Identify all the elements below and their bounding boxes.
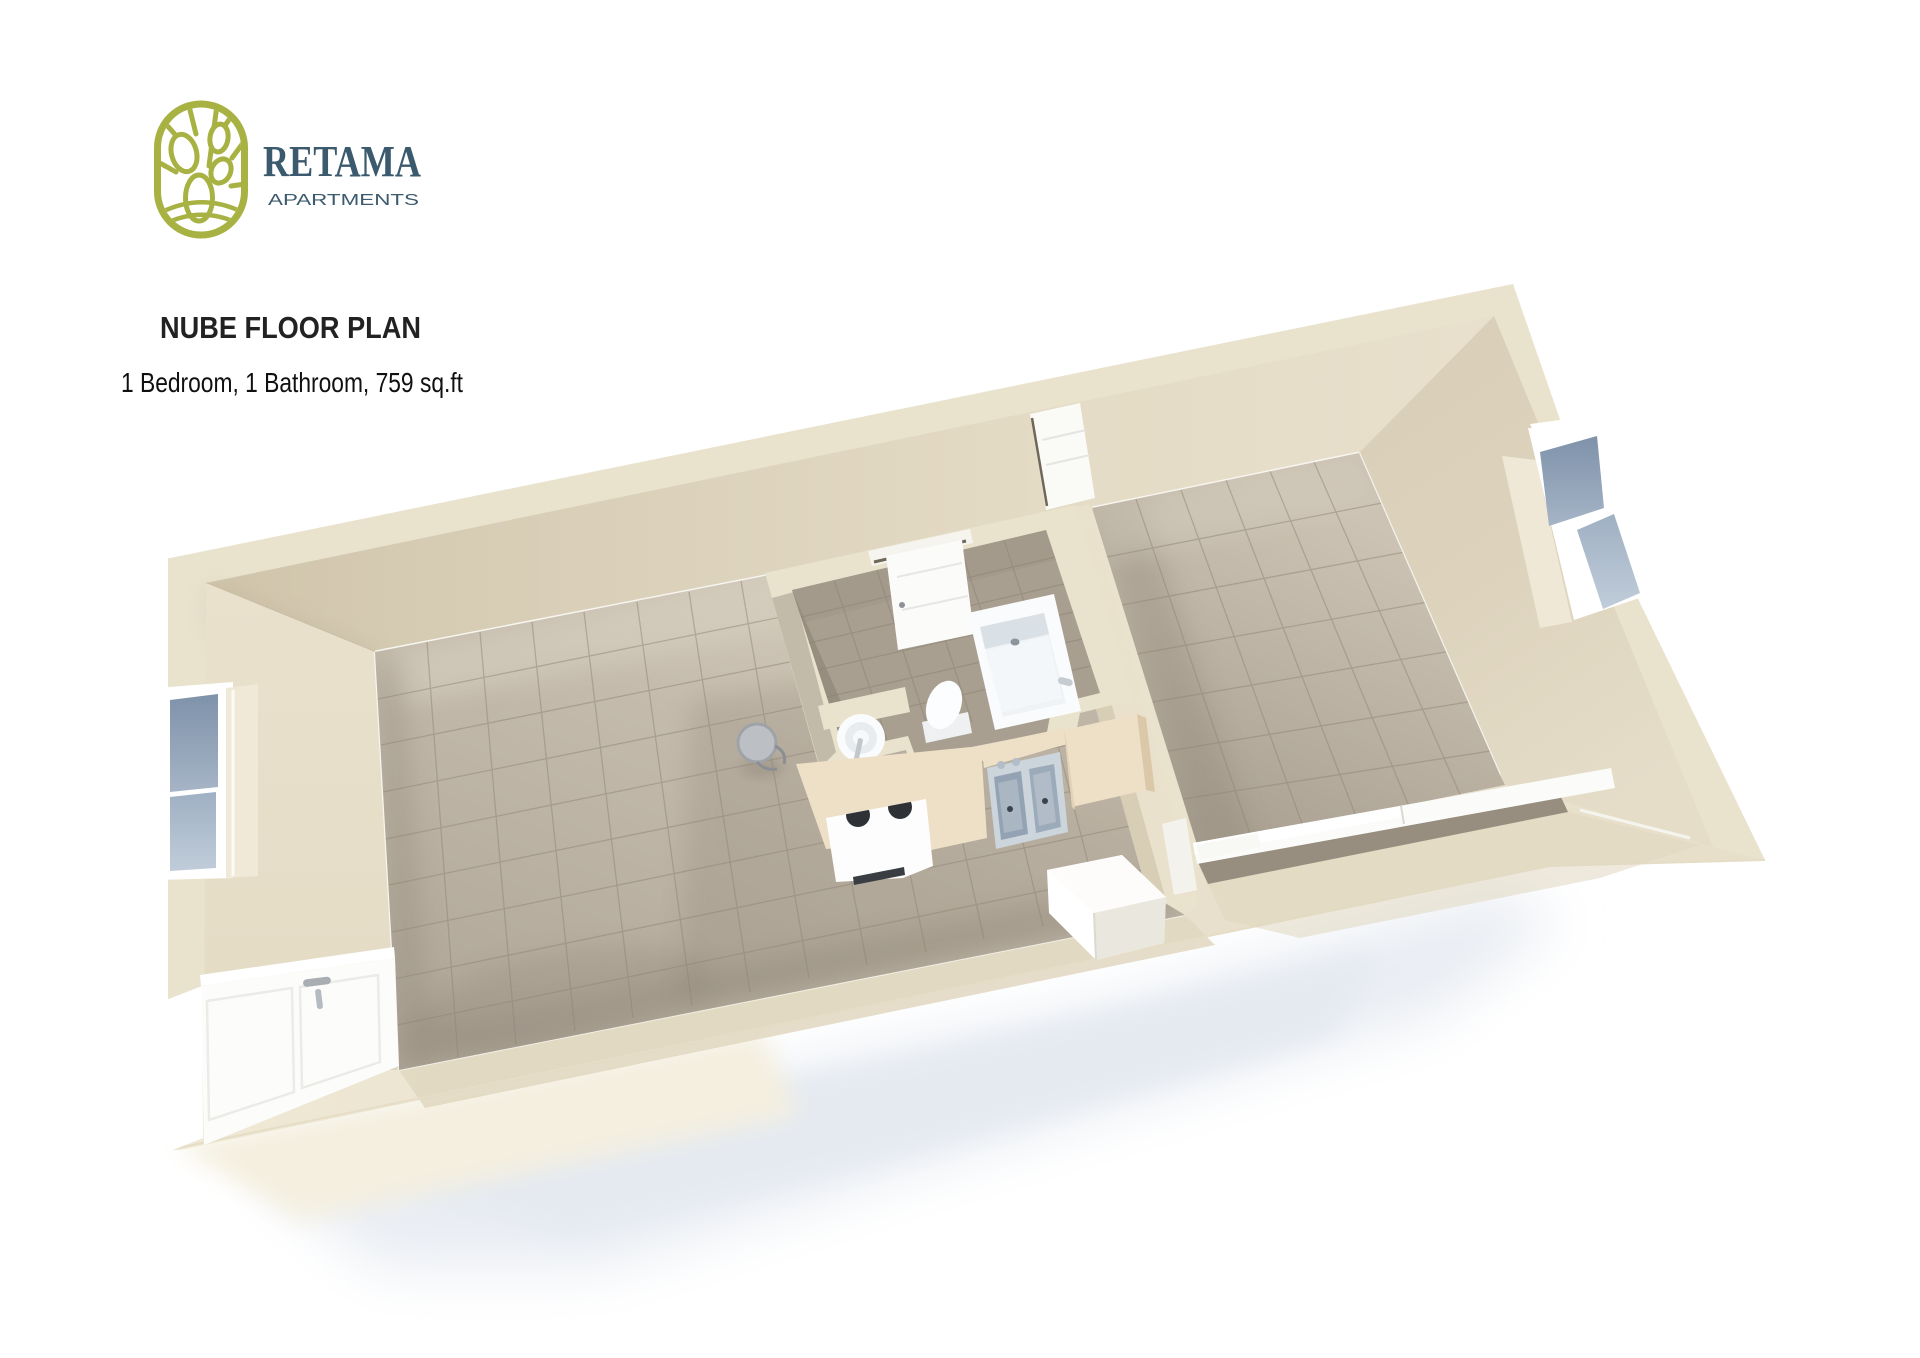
svg-text:RETAMA: RETAMA	[263, 137, 421, 186]
svg-text:1 Bedroom, 1 Bathroom, 759 sq.: 1 Bedroom, 1 Bathroom, 759 sq.ft	[121, 367, 463, 398]
svg-text:APARTMENTS: APARTMENTS	[268, 192, 419, 209]
svg-text:NUBE FLOOR PLAN: NUBE FLOOR PLAN	[160, 310, 421, 345]
